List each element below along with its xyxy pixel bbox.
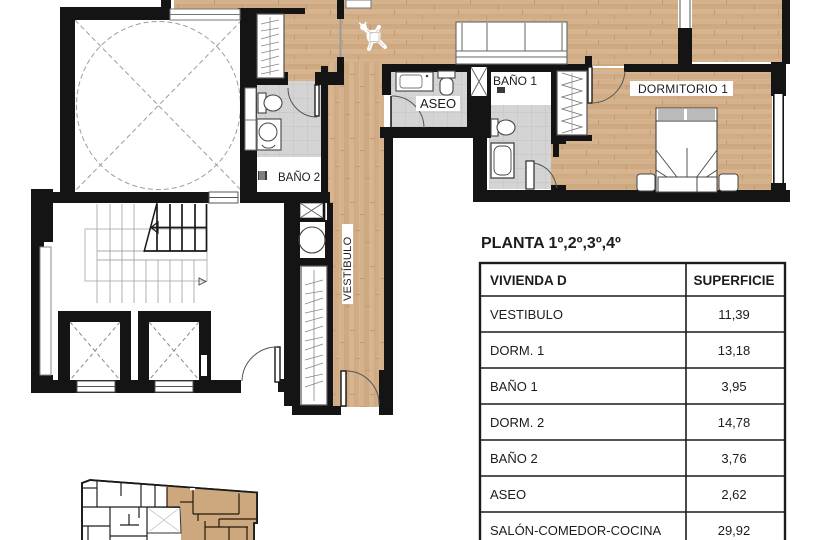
svg-text:SUPERFICIE: SUPERFICIE <box>693 273 774 288</box>
svg-text:ASEO: ASEO <box>490 487 526 502</box>
svg-text:BAÑO 1: BAÑO 1 <box>490 379 538 394</box>
svg-text:11,39: 11,39 <box>718 307 750 322</box>
svg-text:BAÑO 1: BAÑO 1 <box>493 74 537 88</box>
svg-text:14,78: 14,78 <box>718 415 751 430</box>
svg-text:DORM. 2: DORM. 2 <box>490 415 544 430</box>
svg-text:VESTIBULO: VESTIBULO <box>490 307 563 322</box>
svg-text:13,18: 13,18 <box>718 343 751 358</box>
svg-text:29,92: 29,92 <box>718 523 751 538</box>
svg-text:PLANTA 1º,2º,3º,4º: PLANTA 1º,2º,3º,4º <box>481 235 621 252</box>
svg-text:BAÑO 2: BAÑO 2 <box>490 451 538 466</box>
svg-text:BAÑO 2: BAÑO 2 <box>278 171 320 184</box>
svg-text:3,95: 3,95 <box>721 379 746 394</box>
svg-text:3,76: 3,76 <box>721 451 746 466</box>
svg-text:SALÓN-COMEDOR-COCINA: SALÓN-COMEDOR-COCINA <box>490 523 662 538</box>
svg-text:VESTÍBULO: VESTÍBULO <box>341 236 354 301</box>
svg-text:ASEO: ASEO <box>420 96 456 111</box>
svg-text:VIVIENDA D: VIVIENDA D <box>490 273 567 288</box>
svg-text:DORMITORIO 1: DORMITORIO 1 <box>638 82 728 96</box>
svg-text:DORM. 1: DORM. 1 <box>490 343 544 358</box>
svg-text:2,62: 2,62 <box>721 487 746 502</box>
